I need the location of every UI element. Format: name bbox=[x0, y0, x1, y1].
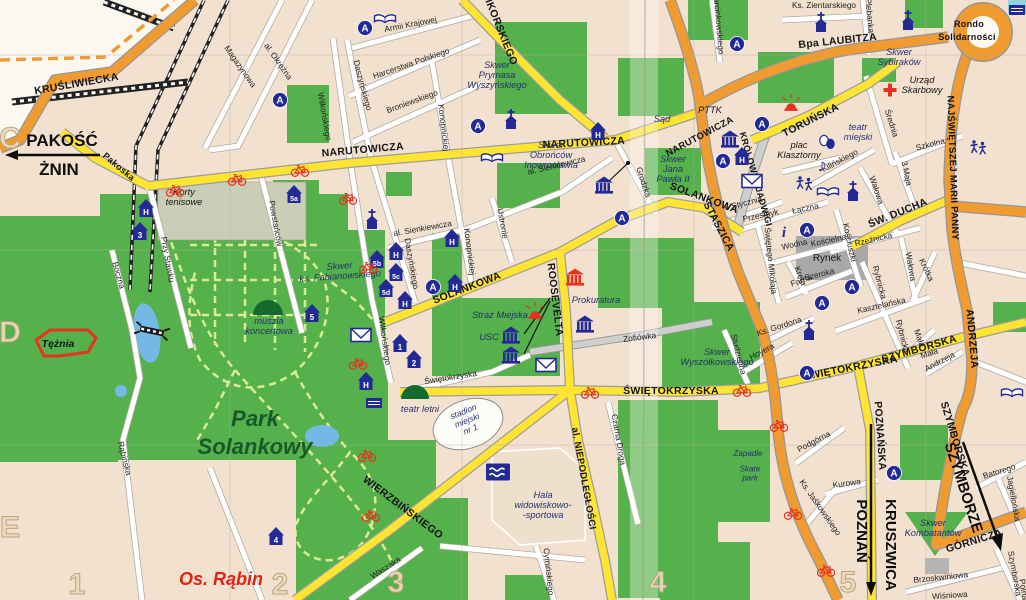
svg-text:A: A bbox=[361, 24, 368, 35]
svg-text:H: H bbox=[452, 283, 458, 292]
svg-text:A: A bbox=[719, 157, 726, 168]
svg-text:4: 4 bbox=[274, 536, 279, 545]
bus-stop-icon: A bbox=[815, 296, 830, 311]
svg-text:H: H bbox=[595, 131, 601, 140]
city-map: KRUŚLIWIECKABpa LAUBITZARondoSolidarnośc… bbox=[0, 0, 1026, 600]
place-label-sąd: Sąd bbox=[654, 114, 671, 124]
bus-stop-icon: A bbox=[615, 211, 630, 226]
grid-col-label-3: 3 bbox=[388, 566, 405, 599]
svg-text:A: A bbox=[848, 283, 855, 294]
svg-text:A: A bbox=[429, 283, 436, 294]
grid-row-label-d: D bbox=[0, 316, 21, 349]
svg-text:5a: 5a bbox=[290, 196, 298, 203]
svg-text:H: H bbox=[143, 208, 149, 217]
swimming-icon bbox=[486, 464, 510, 481]
destination-label-żnin: ŻNIN bbox=[39, 160, 79, 179]
bus-stop-icon: A bbox=[845, 280, 860, 295]
road-label-solidarności: Solidarności bbox=[938, 32, 996, 42]
svg-text:1: 1 bbox=[398, 343, 403, 352]
svg-text:H: H bbox=[393, 251, 399, 260]
bus-stop-icon: A bbox=[426, 280, 441, 295]
grid-col-label-5: 5 bbox=[840, 566, 857, 599]
svg-text:5c: 5c bbox=[392, 274, 400, 281]
road-label-rondo: Rondo bbox=[954, 19, 984, 29]
destination-label-kruszwica: KRUSZWICA bbox=[882, 499, 899, 591]
svg-text:A: A bbox=[803, 226, 810, 237]
place-label-straż-miejska: Straż Miejska bbox=[472, 310, 528, 320]
place-label-rynek: Rynek bbox=[813, 253, 842, 264]
svg-text:A: A bbox=[474, 122, 481, 133]
svg-text:5d: 5d bbox=[382, 290, 390, 297]
svg-text:3: 3 bbox=[138, 231, 143, 240]
place-label-zapadle: Zapadle bbox=[733, 449, 763, 458]
street-label-wiśniowa: Wiśniowa bbox=[932, 589, 968, 600]
destination-label-poznań: POZNAŃ bbox=[853, 499, 870, 562]
svg-text:A: A bbox=[733, 40, 740, 51]
svg-text:A: A bbox=[890, 469, 897, 480]
bus-stop-icon: A bbox=[273, 93, 288, 108]
svg-text:2: 2 bbox=[412, 359, 417, 368]
grid-col-label-4: 4 bbox=[650, 566, 667, 599]
bus-stop-icon: A bbox=[800, 366, 815, 381]
bus-stop-icon: A bbox=[800, 223, 815, 238]
grid-row-label-e: E bbox=[0, 511, 20, 544]
svg-text:H: H bbox=[363, 381, 369, 390]
envelope-icon bbox=[351, 329, 371, 342]
bus-stop-icon: A bbox=[471, 119, 486, 134]
road-label-świętokrzyska: ŚWIĘTOKRZYSKA bbox=[623, 384, 719, 397]
grid-col-label-2: 2 bbox=[272, 568, 289, 600]
svg-text:A: A bbox=[758, 120, 765, 131]
place-label-tężnia: Tężnia bbox=[42, 338, 75, 350]
building-icon bbox=[366, 398, 382, 408]
svg-text:5: 5 bbox=[310, 313, 315, 322]
bus-stop-icon: A bbox=[755, 117, 770, 132]
envelope-icon bbox=[742, 175, 762, 188]
bus-stop-icon: A bbox=[730, 37, 745, 52]
place-label-usc: USC bbox=[479, 332, 499, 342]
street-label-ks-zientarskiego: Ks. Zientarskiego bbox=[792, 0, 856, 10]
destination-label-pakość: PAKOŚĆ bbox=[26, 131, 97, 150]
place-label-prokuratura: Prokuratura bbox=[572, 295, 621, 305]
place-label-pttk: PTTK bbox=[698, 105, 723, 115]
grid-col-label-1: 1 bbox=[69, 568, 86, 600]
svg-text:A: A bbox=[276, 96, 283, 107]
place-label-skate-park: Skatepark bbox=[740, 465, 761, 483]
svg-text:♪: ♪ bbox=[818, 160, 826, 175]
svg-text:A: A bbox=[618, 214, 625, 225]
svg-text:A: A bbox=[818, 299, 825, 310]
envelope-icon bbox=[536, 359, 556, 372]
bus-stop-icon: A bbox=[887, 466, 902, 481]
svg-text:H: H bbox=[739, 156, 745, 165]
svg-text:H: H bbox=[402, 300, 408, 309]
music-note-icon: ♪ bbox=[818, 160, 826, 175]
svg-text:H: H bbox=[449, 238, 455, 247]
place-label-teatr-letni: teatr letni bbox=[401, 404, 440, 414]
svg-text:A: A bbox=[803, 369, 810, 380]
building-icon bbox=[1009, 5, 1025, 15]
bus-stop-icon: A bbox=[716, 154, 731, 169]
grid-row-label-c: C bbox=[0, 122, 21, 155]
place-label-os-rąbin: Os. Rąbin bbox=[179, 569, 263, 589]
bus-stop-icon: A bbox=[358, 21, 373, 36]
